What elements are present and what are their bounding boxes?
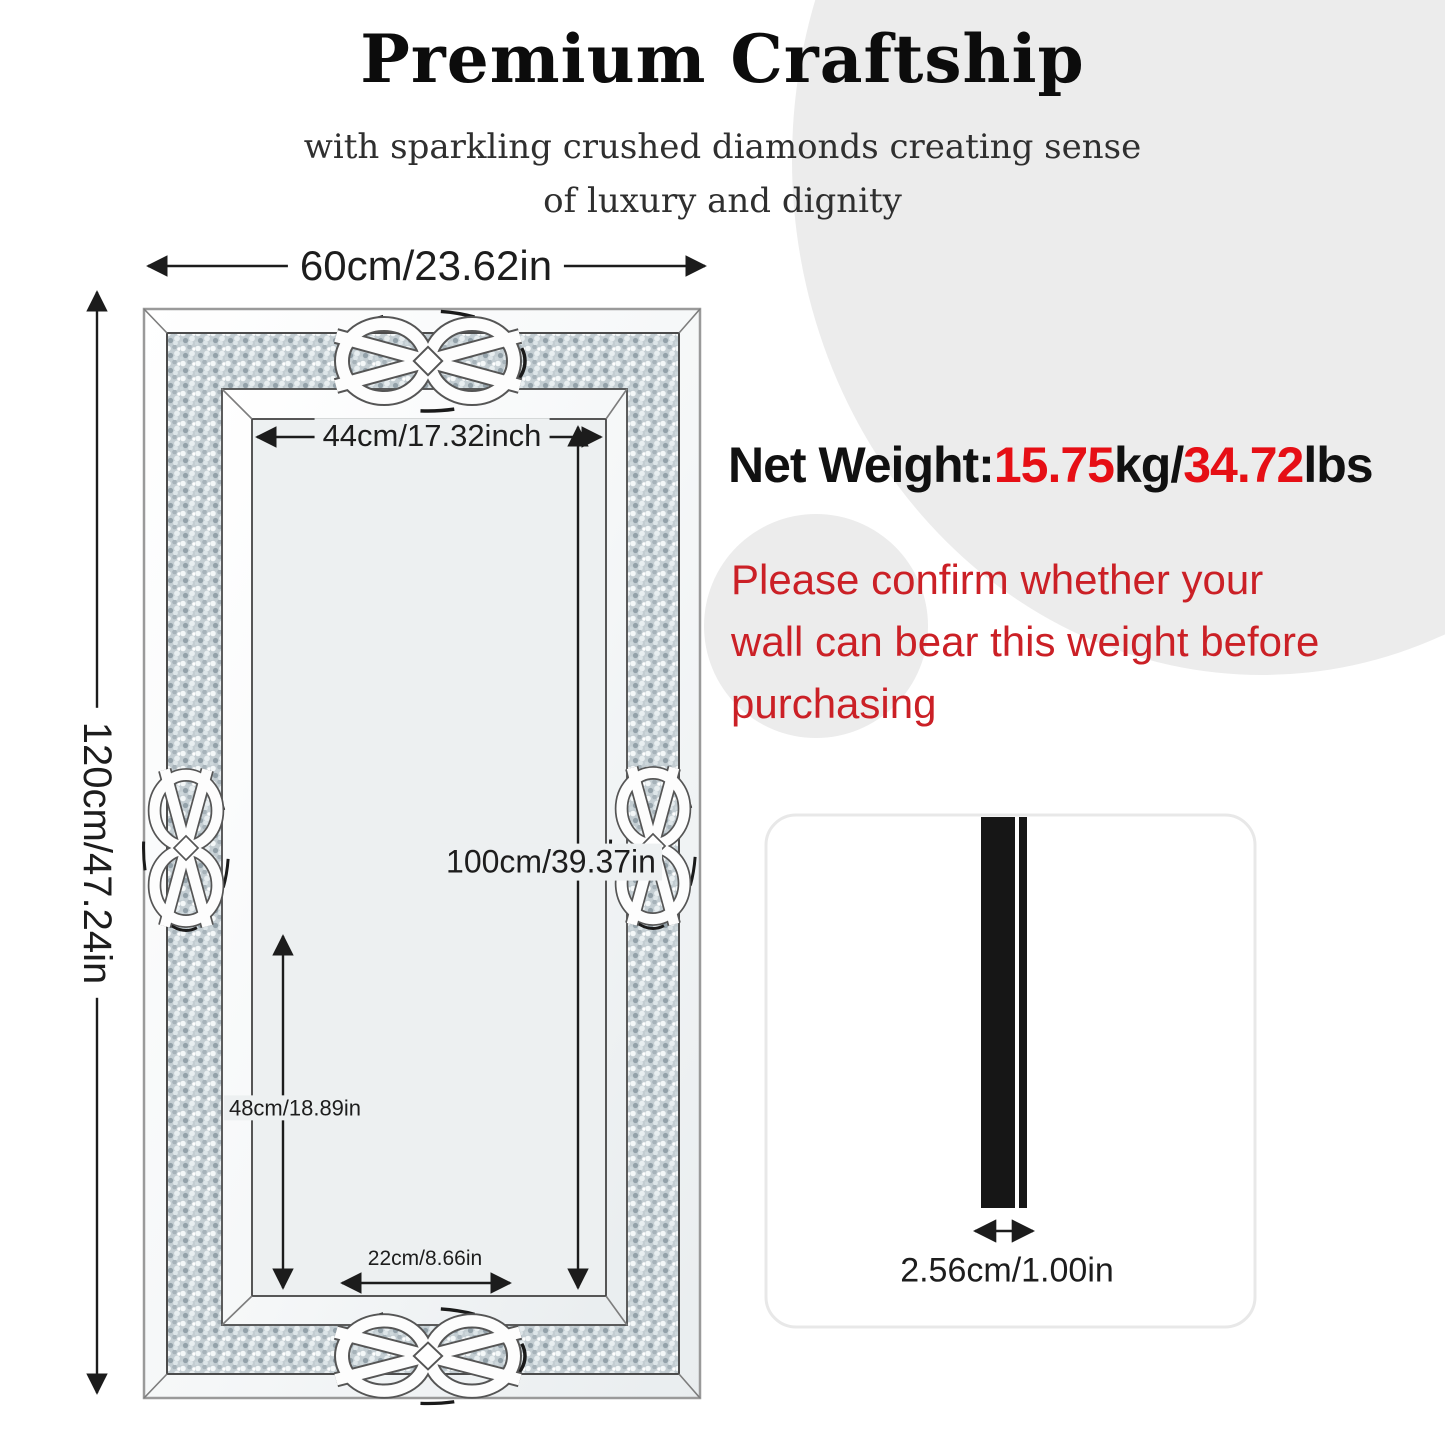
outer-height-label: 120cm/47.24in xyxy=(72,708,122,998)
side-view-bar-highlight xyxy=(1015,817,1019,1208)
lower-inner-width-label: 22cm/8.66in xyxy=(363,1247,487,1271)
side-view-bar xyxy=(981,817,1027,1208)
inner-height-label: 100cm/39.37in xyxy=(440,844,662,881)
outer-width-label: 60cm/23.62in xyxy=(288,242,564,290)
infographic-canvas: Premium Craftship with sparkling crushed… xyxy=(0,0,1445,1445)
net-weight-lbs-value: 34.72 xyxy=(1183,437,1303,493)
warning-line-3: purchasing xyxy=(731,673,1319,735)
thickness-label: 2.56cm/1.00in xyxy=(894,1251,1120,1290)
net-weight-text: Net Weight:15.75kg/34.72lbs xyxy=(728,436,1373,494)
net-weight-kg-value: 15.75 xyxy=(994,437,1114,493)
subtitle-line-1: with sparkling crushed diamonds creating… xyxy=(0,120,1445,174)
inner-width-label: 44cm/17.32inch xyxy=(315,418,550,454)
subtitle-line-2: of luxury and dignity xyxy=(0,174,1445,228)
warning-line-2: wall can bear this weight before xyxy=(731,611,1319,673)
page-subtitle: with sparkling crushed diamonds creating… xyxy=(0,120,1445,228)
lower-inner-height-label: 48cm/18.89in xyxy=(224,1095,366,1120)
page-title: Premium Craftship xyxy=(0,20,1445,98)
net-weight-kg-unit: kg/ xyxy=(1114,437,1183,493)
side-view-card xyxy=(766,815,1255,1327)
weight-warning-text: Please confirm whether your wall can bea… xyxy=(731,549,1319,735)
warning-line-1: Please confirm whether your xyxy=(731,549,1319,611)
net-weight-prefix: Net Weight: xyxy=(728,437,994,493)
net-weight-lbs-unit: lbs xyxy=(1303,437,1372,493)
